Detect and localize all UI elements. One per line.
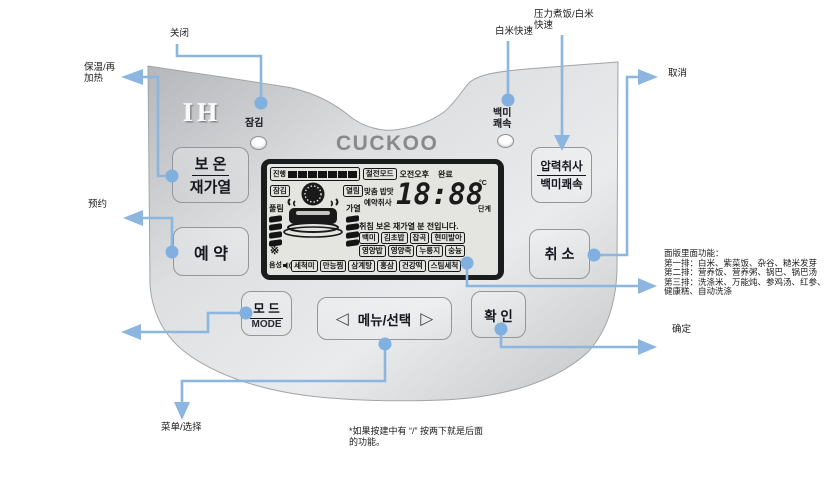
- annotation-menu-select: 菜单/选择: [161, 423, 202, 434]
- lcd-menu-item: 영양죽: [388, 245, 415, 257]
- lcd-status-line: 취침 보온 재가열 분 전입니다.: [359, 221, 458, 232]
- mode-english-label: MODE: [252, 319, 282, 330]
- annotation-reserve: 预约: [88, 200, 107, 211]
- voice-indicator: 음성: [269, 260, 282, 270]
- pressure-cook-label: 압력취사: [537, 158, 585, 176]
- quick-button-label-line1: 백미: [493, 108, 511, 119]
- callout-line-keep-warm: [142, 77, 169, 176]
- cancel-label: 취 소: [545, 244, 575, 264]
- callout-dot-white-rice-quick: [502, 94, 515, 107]
- ih-logo: IH: [183, 98, 221, 128]
- progress-label: 진행: [273, 169, 286, 179]
- annotation-keep-warm-line1: 保温/再: [84, 62, 115, 73]
- annotation-pressure-line2: 快速: [534, 20, 553, 31]
- confirm-label: 확 인: [484, 305, 513, 325]
- arrow-right-confirm-icon: [638, 339, 657, 355]
- annotation-white-rice-quick: 白米快速: [495, 27, 533, 38]
- callout-line-close: [177, 44, 261, 99]
- callout-line-mode: [140, 313, 245, 332]
- lcd-open-indicator: 열림: [343, 185, 363, 197]
- lcd-menu-row3: 세척미만능찜삼계탕홍삼건강떡스팀세척: [291, 260, 461, 272]
- reheat-label: 재가열: [190, 176, 231, 197]
- pressure-cook-button[interactable]: 압력취사 백미쾌속: [531, 147, 592, 203]
- temp-unit: °C: [479, 180, 487, 187]
- custom-taste-indicator: 맞춤 밥맛: [364, 186, 394, 197]
- lcd-menu-item: 김초밥: [381, 232, 408, 244]
- arrow-down-menu-select-icon: [174, 402, 190, 420]
- annotation-keep-warm-line2: 加热: [84, 73, 103, 84]
- white-rice-quick-label: 백미쾌속: [540, 176, 582, 192]
- annotation-close: 关闭: [170, 29, 189, 40]
- cancel-button[interactable]: 취 소: [529, 229, 590, 279]
- annotation-confirm: 确定: [672, 325, 691, 336]
- lcd-screen: 진행 절전모드 오전오후 완료 잠김 열림 풀림 가열: [267, 164, 498, 275]
- lock-button[interactable]: [250, 136, 267, 150]
- quick-button-label-line2: 쾌속: [493, 119, 511, 130]
- white-rice-quick-button[interactable]: [497, 134, 514, 148]
- snowflake-icon: ※: [270, 244, 279, 257]
- annotation-pressure-line1: 压力煮饭/白米: [534, 9, 594, 20]
- keep-warm-label: 보 온: [192, 153, 230, 176]
- lock-button-label: 잠김: [245, 119, 263, 130]
- callout-dot-close: [255, 97, 268, 110]
- power-save-indicator: 절전모드: [363, 168, 397, 180]
- keep-warm-reheat-button[interactable]: 보 온 재가열: [172, 147, 249, 203]
- lcd-menu-item: 건강떡: [399, 260, 426, 272]
- callout-line-reserve: [142, 218, 172, 249]
- menu-select-button[interactable]: ◁ 메뉴/선택 ▷: [317, 297, 452, 340]
- callout-line-cancel: [597, 77, 639, 255]
- pressure-bars-right: [346, 216, 359, 246]
- lcd-menu-item: 스팀세척: [428, 260, 462, 272]
- arrow-right-panel-functions-icon: [638, 278, 657, 294]
- arrow-left-mode-icon: [121, 324, 141, 340]
- mode-korean-label: 모 드: [250, 298, 282, 319]
- footnote-line: 的功能。: [349, 437, 499, 448]
- stage-unit: 단계: [478, 204, 491, 214]
- reserve-cook-indicator: 예약취사: [364, 197, 392, 208]
- confirm-button[interactable]: 확 인: [471, 291, 526, 338]
- callout-line-menu-select: [182, 347, 385, 404]
- pressure-bars-left: [269, 216, 282, 246]
- annotation-footnote: *如果按建中有 “/” 按两下就是后面的功能。: [349, 426, 499, 447]
- progress-indicator: 진행: [270, 167, 360, 181]
- lcd-menu-item: 현미발아: [431, 232, 465, 244]
- lcd-menu-item: 만능찜: [320, 260, 347, 272]
- mode-button[interactable]: 모 드 MODE: [241, 291, 292, 336]
- reserve-button[interactable]: 예 약: [173, 227, 249, 276]
- progress-bar: [288, 171, 357, 178]
- lcd-time-digits: 18:88: [396, 177, 483, 211]
- speaker-icon: [283, 261, 292, 270]
- cuckoo-panel-diagram: IH CUCKOO 잠김 백미 쾌속 보 온 재가열 예 약 압력취사 백미쾌속…: [0, 0, 835, 500]
- lcd-menu-row2: 영양밥영양죽누룽지숭늉: [359, 245, 465, 257]
- arrow-right-cancel-icon: [638, 69, 658, 85]
- menu-left-arrow-icon[interactable]: ◁: [336, 309, 349, 329]
- arrow-left-keep-warm-icon: [121, 69, 143, 85]
- rice-cooker-icon: [282, 181, 344, 239]
- menu-right-arrow-icon[interactable]: ▷: [420, 309, 433, 329]
- lcd-menu-item: 세척미: [291, 260, 318, 272]
- panel-functions-line: 健康糕、自动洗涤: [664, 287, 835, 297]
- lcd-menu-item: 누룽지: [416, 245, 443, 257]
- annotation-cancel: 取消: [668, 69, 687, 80]
- lcd-menu-item: 숭늉: [445, 245, 465, 257]
- reserve-label: 예 약: [194, 240, 228, 264]
- annotation-panel-functions: 面版里面功能：第一排：白米、紫菜饭、杂谷、糙米发芽第二排：营养饭、营养粥、锅巴、…: [664, 249, 835, 297]
- footnote-line: *如果按建中有 “/” 按两下就是后面: [349, 426, 499, 437]
- lcd-menu-item: 잡곡: [410, 232, 430, 244]
- menu-select-label: 메뉴/선택: [358, 309, 411, 329]
- lcd-menu-item: 영양밥: [359, 245, 386, 257]
- lcd-heat-indicator: 가열: [346, 203, 361, 214]
- lcd-menu-item: 삼계탕: [348, 260, 375, 272]
- cuckoo-logo: CUCKOO: [336, 132, 438, 156]
- lcd-menu-item: 백미: [359, 232, 379, 244]
- lcd-display: 진행 절전모드 오전오후 완료 잠김 열림 풀림 가열: [261, 159, 504, 280]
- lcd-menu-row1: 백미김초밥잡곡현미발아: [359, 232, 465, 244]
- lcd-menu-item: 홍삼: [377, 260, 397, 272]
- arrow-left-reserve-icon: [123, 210, 143, 226]
